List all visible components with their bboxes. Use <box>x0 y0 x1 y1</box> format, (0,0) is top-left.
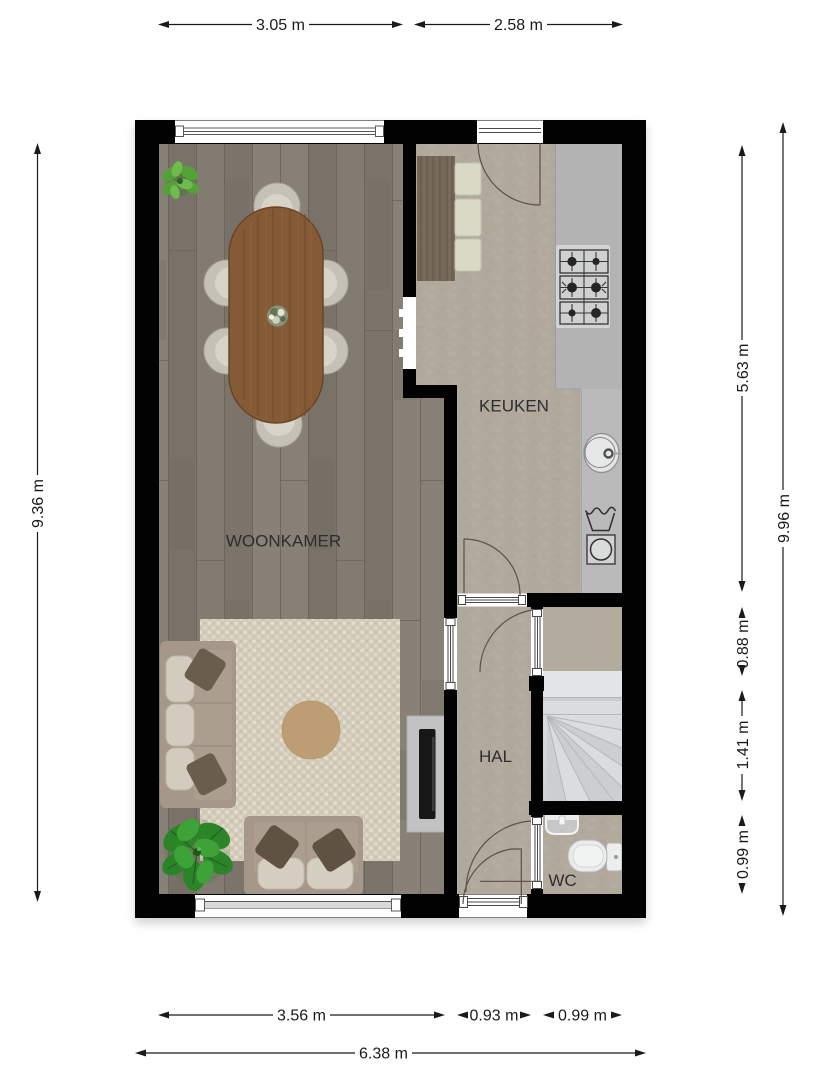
svg-text:3.56 m: 3.56 m <box>277 1008 326 1025</box>
svg-text:KEUKEN: KEUKEN <box>479 397 549 416</box>
svg-text:6.38 m: 6.38 m <box>359 1046 408 1063</box>
svg-text:9.36 m: 9.36 m <box>30 479 47 528</box>
svg-text:WOONKAMER: WOONKAMER <box>226 532 341 551</box>
svg-text:5.63 m: 5.63 m <box>735 344 752 393</box>
svg-text:0.88 m: 0.88 m <box>735 620 752 669</box>
svg-text:0.93 m: 0.93 m <box>470 1008 519 1025</box>
svg-text:9.96 m: 9.96 m <box>776 494 793 543</box>
svg-text:1.41 m: 1.41 m <box>735 721 752 770</box>
svg-text:WC: WC <box>548 871 576 890</box>
svg-text:2.58 m: 2.58 m <box>494 17 543 34</box>
svg-text:3.05 m: 3.05 m <box>256 17 305 34</box>
svg-text:HAL: HAL <box>479 747 512 766</box>
svg-text:0.99 m: 0.99 m <box>735 830 752 879</box>
svg-text:0.99 m: 0.99 m <box>558 1008 607 1025</box>
